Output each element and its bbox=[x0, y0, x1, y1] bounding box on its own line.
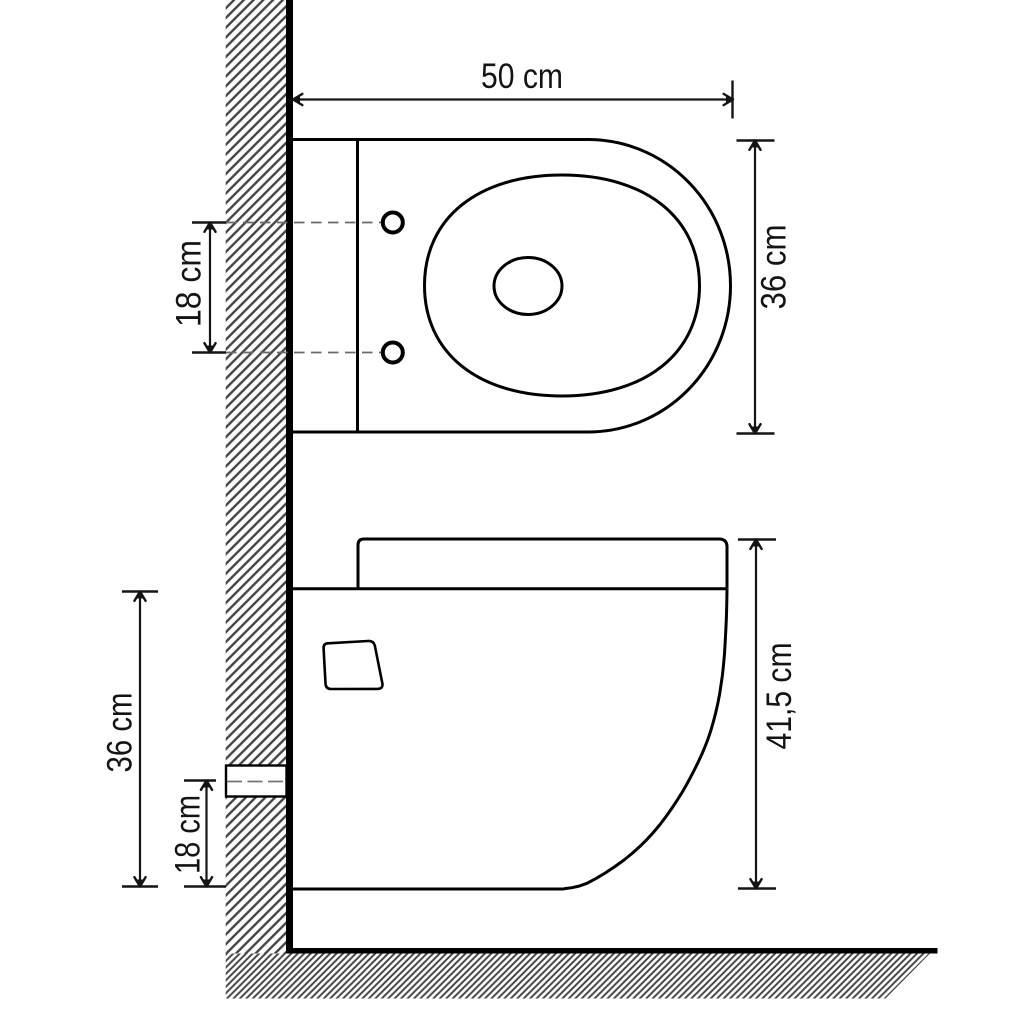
svg-text:41,5 cm: 41,5 cm bbox=[760, 643, 799, 750]
svg-text:18 cm: 18 cm bbox=[169, 795, 208, 874]
svg-text:36 cm: 36 cm bbox=[101, 693, 140, 773]
svg-text:18 cm: 18 cm bbox=[170, 240, 209, 327]
svg-text:36 cm: 36 cm bbox=[755, 225, 794, 310]
svg-text:50 cm: 50 cm bbox=[481, 57, 563, 96]
